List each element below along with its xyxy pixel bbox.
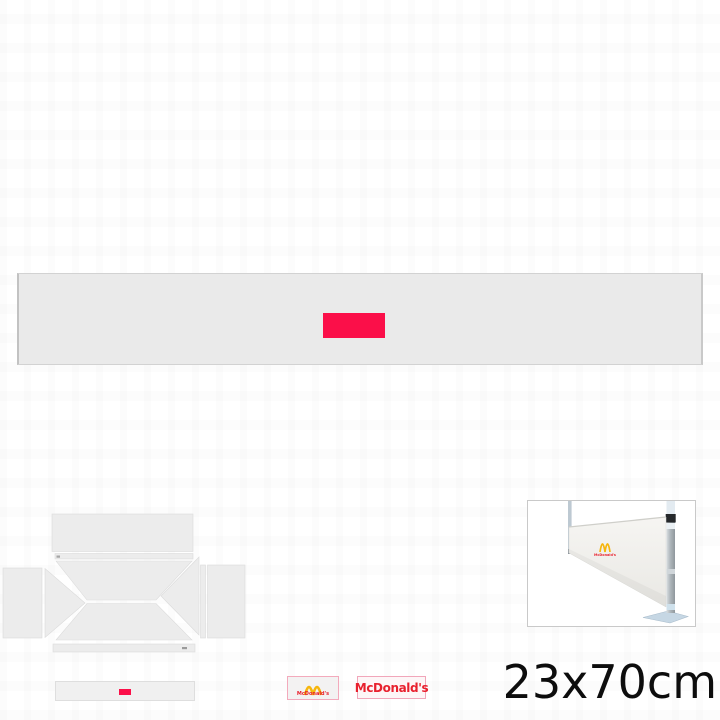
- tent-valance-strip-top: [55, 554, 193, 560]
- banner-on-frame-photo: McDonald's: [527, 500, 696, 627]
- pole-band-lower: [667, 604, 676, 610]
- tent-valance-strip-bottom: [53, 644, 195, 652]
- size-label: 23x70cm: [503, 656, 717, 709]
- banner-clamp-black: [666, 514, 676, 523]
- zipper-mark-icon: [57, 556, 61, 558]
- tent-unfolded-layout-diagram: [0, 505, 250, 657]
- tent-left-wall-panel: [3, 568, 42, 638]
- logo-sample-wordmark-box: McDonald's: [357, 676, 426, 699]
- brand-wordmark: McDonald's: [355, 681, 428, 695]
- brand-wordmark-small: McDonald's: [288, 691, 338, 697]
- right-pole-top-sleeve: [667, 501, 676, 514]
- valance-banner-front-view: [17, 273, 703, 365]
- logo-sample-arches-box: McDonald's: [287, 676, 339, 700]
- pole-band-upper: [667, 523, 676, 529]
- zipper-mark-icon: [182, 647, 187, 649]
- tent-right-zip-strip: [201, 565, 206, 638]
- print-area-swatch: [323, 313, 385, 338]
- brand-wordmark-on-banner: McDonald's: [594, 553, 616, 557]
- print-area-mini-swatch: [119, 689, 131, 695]
- pole-joint-band: [667, 569, 676, 574]
- tent-back-wall-panel: [52, 514, 193, 552]
- banner-placement-preview: [55, 681, 195, 701]
- tent-right-wall-panel: [208, 565, 246, 638]
